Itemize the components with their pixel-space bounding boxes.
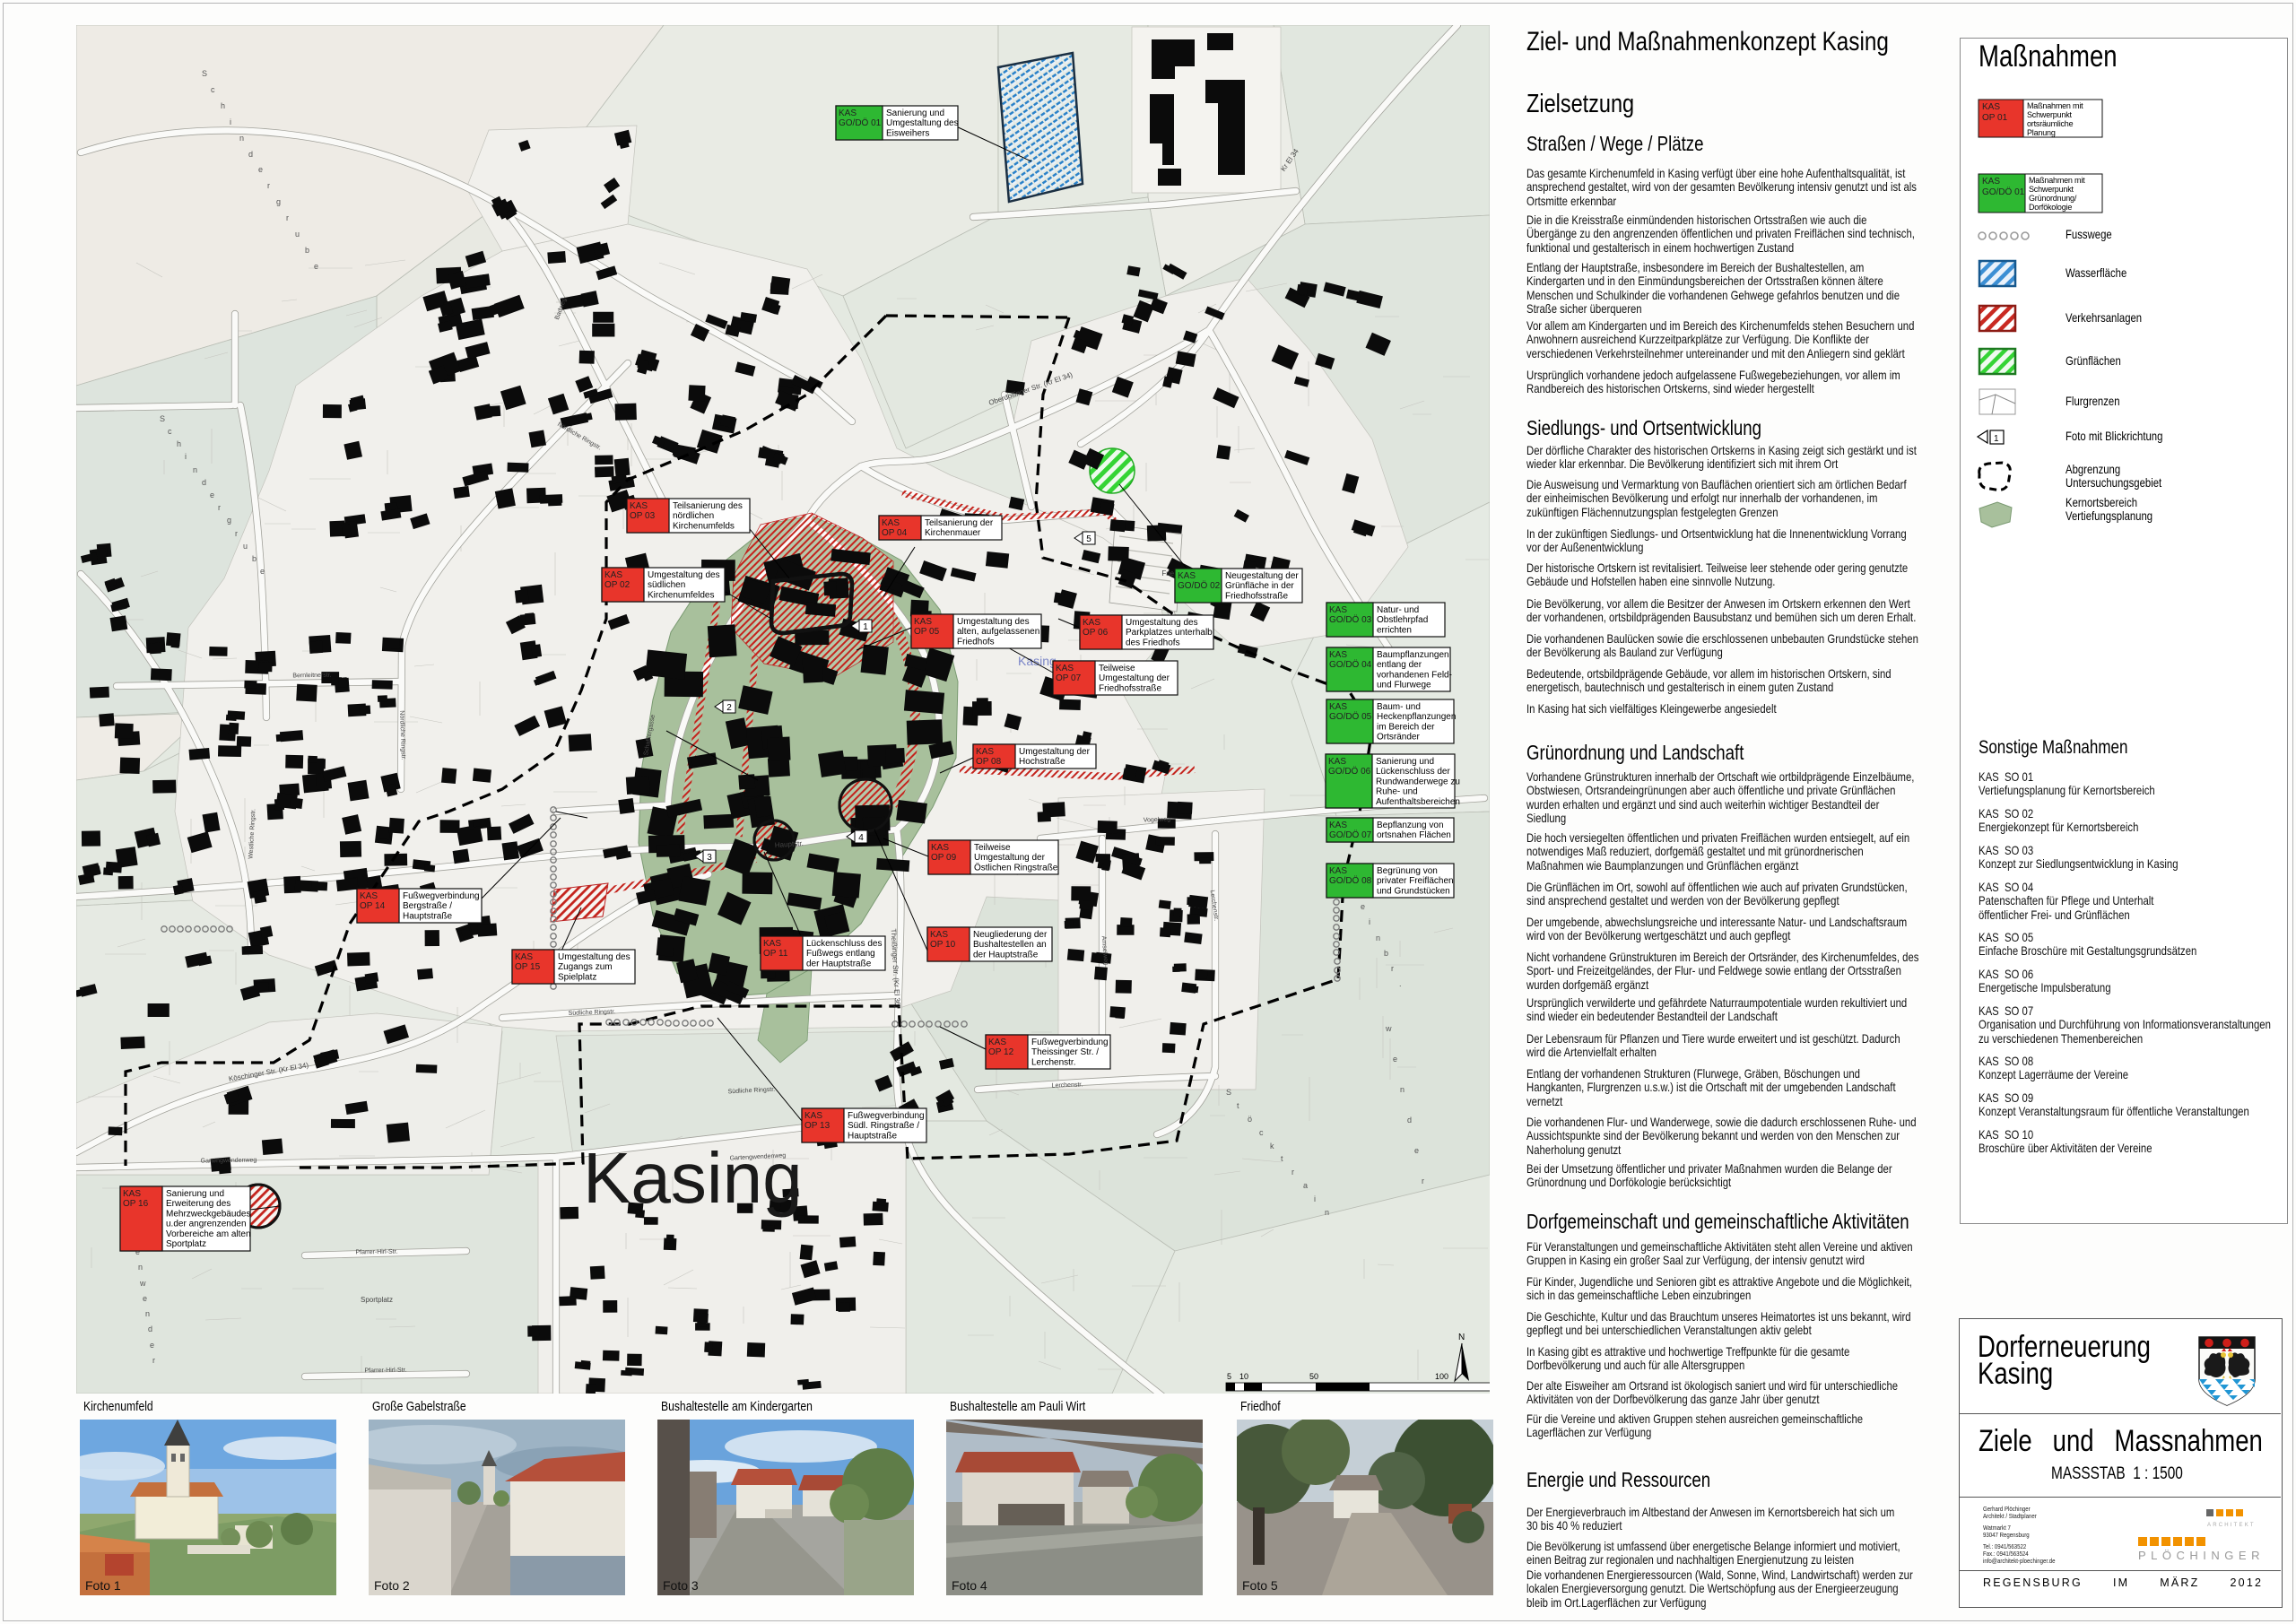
svg-text:Foto 2: Foto 2 <box>374 1578 410 1593</box>
svg-text:Umgestaltung des: Umgestaltung des <box>558 952 631 962</box>
svg-text:Friedhofsstraße: Friedhofsstraße <box>1225 591 1288 601</box>
svg-text:ö: ö <box>1248 1115 1252 1124</box>
svg-text:g: g <box>276 197 281 206</box>
svg-text:PLÖCHINGER: PLÖCHINGER <box>2138 1549 2265 1562</box>
svg-text:alten, aufgelassenen: alten, aufgelassenen <box>957 627 1039 637</box>
svg-text:Sportplatz: Sportplatz <box>361 1296 393 1304</box>
svg-text:Kasing: Kasing <box>583 1138 803 1218</box>
svg-text:Umgestaltung des: Umgestaltung des <box>886 118 959 128</box>
svg-text:Bernleitnerstr.: Bernleitnerstr. <box>292 673 331 680</box>
svg-text:KAS: KAS <box>931 843 949 853</box>
svg-text:S: S <box>160 414 165 423</box>
svg-text:GO/DÖ 01: GO/DÖ 01 <box>839 117 882 128</box>
svg-text:h: h <box>177 439 181 448</box>
svg-text:nördlichen: nördlichen <box>673 511 714 521</box>
svg-text:e: e <box>1414 1146 1419 1155</box>
svg-text:OP 14: OP 14 <box>360 901 386 911</box>
svg-text:Zugangs zum: Zugangs zum <box>558 962 613 972</box>
svg-text:KAS: KAS <box>1329 821 1347 830</box>
svg-text:privater Freiflächen: privater Freiflächen <box>1377 876 1454 886</box>
svg-text:KAS: KAS <box>988 1038 1006 1047</box>
svg-text:Teilsanierung des: Teilsanierung des <box>673 501 743 511</box>
svg-text:Südl. Ringstraße /: Südl. Ringstraße / <box>848 1121 919 1131</box>
svg-text:Bergstraße /: Bergstraße / <box>403 901 452 911</box>
svg-text:Fußwegverbindung: Fußwegverbindung <box>403 891 480 901</box>
svg-text:Maßnahmen mit: Maßnahmen mit <box>2027 101 2083 110</box>
svg-text:u: u <box>295 230 300 239</box>
svg-text:KAS: KAS <box>1329 702 1347 712</box>
svg-text:Foto 4: Foto 4 <box>952 1578 987 1593</box>
svg-text:Bushaltestellen an: Bushaltestellen an <box>973 940 1047 950</box>
svg-text:KAS: KAS <box>1329 866 1347 876</box>
svg-text:KAS: KAS <box>360 891 378 901</box>
svg-text:Sanierung und: Sanierung und <box>1376 757 1434 767</box>
svg-text:OP 16: OP 16 <box>123 1199 149 1209</box>
svg-text:d: d <box>248 150 253 159</box>
svg-text:c: c <box>211 85 215 94</box>
svg-text:N: N <box>1458 1333 1465 1342</box>
svg-text:KAS: KAS <box>804 1111 822 1121</box>
svg-text:KAS: KAS <box>1982 177 2000 187</box>
svg-text:GO/DÖ 08: GO/DÖ 08 <box>1329 875 1372 886</box>
svg-text:Planung: Planung <box>2027 128 2056 137</box>
svg-text:2: 2 <box>726 703 732 713</box>
svg-text:i: i <box>185 452 187 461</box>
svg-text:i: i <box>1314 1194 1316 1203</box>
svg-text:i: i <box>230 117 231 126</box>
svg-text:Umgestaltung der: Umgestaltung der <box>1019 747 1091 757</box>
svg-text:OP 05: OP 05 <box>914 627 940 637</box>
svg-text:Hauptstraße: Hauptstraße <box>403 911 452 921</box>
svg-text:KAS: KAS <box>1083 618 1100 628</box>
svg-text:Östlichen Ringstraße: Östlichen Ringstraße <box>974 862 1058 873</box>
svg-text:n: n <box>1325 1208 1329 1217</box>
svg-text:KAS: KAS <box>1178 571 1196 581</box>
svg-text:Sanierung und: Sanierung und <box>886 109 944 118</box>
svg-text:k: k <box>1270 1142 1274 1151</box>
svg-text:Hochstraße: Hochstraße <box>1019 757 1065 767</box>
svg-text:Pfarrer-Hirl-Str.: Pfarrer-Hirl-Str. <box>364 1368 406 1375</box>
svg-text:1: 1 <box>1994 434 1999 444</box>
svg-text:r: r <box>235 529 238 538</box>
svg-text:c: c <box>1259 1128 1264 1137</box>
svg-text:Hauptstraße: Hauptstraße <box>848 1131 897 1141</box>
svg-text:OP 10: OP 10 <box>930 940 956 950</box>
svg-text:Ortsränder: Ortsränder <box>1377 733 1420 743</box>
svg-text:OP 11: OP 11 <box>763 949 788 959</box>
svg-text:e: e <box>150 1341 154 1350</box>
svg-text:100: 100 <box>1435 1372 1448 1381</box>
svg-text:entlang der: entlang der <box>1377 660 1422 670</box>
svg-text:KAS: KAS <box>882 518 900 528</box>
svg-text:Neugliederung der: Neugliederung der <box>973 930 1048 940</box>
svg-text:Foto 1: Foto 1 <box>85 1578 121 1593</box>
svg-text:Sanierung und: Sanierung und <box>166 1189 224 1199</box>
svg-text:e: e <box>1393 1055 1397 1064</box>
svg-text:Dorfökologie: Dorfökologie <box>2029 203 2072 212</box>
svg-text:w: w <box>139 1279 146 1288</box>
svg-text:r: r <box>152 1356 155 1365</box>
svg-text:Mehrzweckgebäudes: Mehrzweckgebäudes <box>166 1209 251 1219</box>
svg-text:Parkplatzes unterhalb: Parkplatzes unterhalb <box>1126 628 1213 638</box>
svg-text:KAS: KAS <box>930 930 948 940</box>
svg-text:r: r <box>218 503 221 512</box>
svg-text:b: b <box>305 246 309 255</box>
svg-text:OP 04: OP 04 <box>882 528 908 538</box>
svg-text:Foto 3: Foto 3 <box>663 1578 699 1593</box>
svg-text:OP 09: OP 09 <box>931 853 957 863</box>
svg-text:Fußwegs entlang: Fußwegs entlang <box>806 949 875 959</box>
svg-text:OP 15: OP 15 <box>515 962 541 972</box>
svg-text:Teilweise: Teilweise <box>974 843 1011 853</box>
svg-text:KAS: KAS <box>976 747 994 757</box>
svg-text:Maßnahmen mit: Maßnahmen mit <box>2029 176 2085 185</box>
svg-text:Friedhofs: Friedhofs <box>957 637 995 647</box>
svg-text:vorhandenen Feld-: vorhandenen Feld- <box>1377 670 1452 680</box>
svg-text:Spielplatz: Spielplatz <box>558 972 596 982</box>
svg-text:.: . <box>1399 979 1402 988</box>
svg-text:Lückenschluss der: Lückenschluss der <box>1376 767 1450 777</box>
svg-text:u.der angrenzenden: u.der angrenzenden <box>166 1220 247 1229</box>
svg-text:ortsräumliche: ortsräumliche <box>2027 119 2074 128</box>
svg-text:e: e <box>1361 902 1365 911</box>
svg-text:e: e <box>210 491 214 499</box>
svg-text:Teilweise: Teilweise <box>1099 664 1135 673</box>
svg-text:Ruhe- und: Ruhe- und <box>1376 787 1418 797</box>
svg-text:GO/DÖ 07: GO/DÖ 07 <box>1329 829 1372 840</box>
svg-text:g: g <box>227 516 231 525</box>
svg-text:n: n <box>239 134 244 143</box>
svg-text:Schwerpunkt: Schwerpunkt <box>2027 110 2073 119</box>
svg-text:d: d <box>202 478 206 487</box>
svg-text:a: a <box>1303 1181 1308 1190</box>
svg-text:S: S <box>1226 1088 1231 1097</box>
svg-text:Bepflanzung von: Bepflanzung von <box>1377 821 1444 830</box>
svg-text:n: n <box>1376 934 1380 942</box>
svg-text:Gartengwendenweg: Gartengwendenweg <box>201 1157 257 1164</box>
svg-text:Vogelweg: Vogelweg <box>1144 816 1171 823</box>
svg-text:Theissinger Str. /: Theissinger Str. / <box>1031 1047 1099 1057</box>
svg-text:Lerchenstr.: Lerchenstr. <box>1052 1081 1083 1089</box>
svg-text:Teilsanierung der: Teilsanierung der <box>925 518 994 528</box>
svg-text:4: 4 <box>858 833 864 843</box>
svg-text:10: 10 <box>1239 1372 1248 1381</box>
svg-text:ARCHITEKT: ARCHITEKT <box>2207 1523 2256 1528</box>
svg-text:h: h <box>221 101 225 110</box>
svg-text:e: e <box>260 567 265 576</box>
svg-text:Umgestaltung der: Umgestaltung der <box>1099 673 1170 683</box>
svg-text:e: e <box>258 165 263 174</box>
svg-text:r: r <box>1422 1177 1424 1185</box>
svg-text:Erweiterung des: Erweiterung des <box>166 1199 230 1209</box>
svg-text:Heckenpflanzungen: Heckenpflanzungen <box>1377 712 1456 722</box>
svg-text:Aufenthaltsbereichen: Aufenthaltsbereichen <box>1376 797 1460 807</box>
svg-text:Umgestaltung des: Umgestaltung des <box>957 617 1030 627</box>
svg-text:1: 1 <box>863 622 868 632</box>
svg-text:KAS: KAS <box>763 939 781 949</box>
svg-text:e: e <box>143 1294 147 1303</box>
svg-text:der Hauptstraße: der Hauptstraße <box>806 959 872 968</box>
svg-text:KAS: KAS <box>839 109 857 118</box>
svg-text:5: 5 <box>1086 534 1091 544</box>
svg-text:der Hauptstraße: der Hauptstraße <box>973 950 1039 960</box>
svg-text:OP 06: OP 06 <box>1083 628 1109 638</box>
svg-text:n: n <box>1400 1085 1405 1094</box>
svg-text:n: n <box>193 465 197 474</box>
svg-text:w: w <box>1385 1024 1392 1033</box>
svg-text:r: r <box>267 181 270 190</box>
svg-text:errichten: errichten <box>1377 625 1412 635</box>
svg-text:OP 08: OP 08 <box>976 757 1002 767</box>
svg-text:5: 5 <box>1227 1372 1231 1381</box>
svg-text:GO/DÖ 06: GO/DÖ 06 <box>1328 766 1371 777</box>
svg-text:OP 03: OP 03 <box>630 511 656 521</box>
svg-text:b: b <box>1384 949 1388 958</box>
svg-text:OP 13: OP 13 <box>804 1121 831 1131</box>
svg-text:n: n <box>138 1263 143 1272</box>
svg-text:ortsnahen Flächen: ortsnahen Flächen <box>1377 830 1451 840</box>
svg-text:Eisweihers: Eisweihers <box>886 128 929 138</box>
svg-text:r: r <box>286 213 289 222</box>
svg-text:KAS: KAS <box>630 501 648 511</box>
svg-text:KAS: KAS <box>604 570 622 580</box>
svg-text:Pfarrer-Hirl-Str.: Pfarrer-Hirl-Str. <box>355 1249 397 1256</box>
svg-text:Foto 5: Foto 5 <box>1242 1578 1278 1593</box>
svg-text:KAS: KAS <box>1328 757 1346 767</box>
svg-text:GO/DÖ 02: GO/DÖ 02 <box>1178 580 1221 591</box>
svg-text:Obstlehrpfad: Obstlehrpfad <box>1377 615 1428 625</box>
svg-text:Umgestaltung der: Umgestaltung der <box>974 853 1046 863</box>
svg-text:GO/DÖ 04: GO/DÖ 04 <box>1329 659 1372 670</box>
svg-text:Lückenschluss des: Lückenschluss des <box>806 939 883 949</box>
svg-text:KAS: KAS <box>1329 605 1347 615</box>
svg-text:OP 01: OP 01 <box>1982 113 2008 123</box>
svg-text:Vorbereiche am alten: Vorbereiche am alten <box>166 1229 251 1239</box>
svg-text:c: c <box>168 427 172 436</box>
svg-text:d: d <box>148 1324 152 1333</box>
svg-text:i: i <box>1369 917 1370 926</box>
svg-text:Kirchenumfelds: Kirchenumfelds <box>673 521 735 531</box>
svg-text:südlichen: südlichen <box>648 580 685 590</box>
svg-text:3: 3 <box>707 853 712 863</box>
svg-text:Begrünung von: Begrünung von <box>1377 866 1438 876</box>
svg-text:KAS: KAS <box>1056 664 1074 673</box>
svg-text:GO/DÖ 03: GO/DÖ 03 <box>1329 614 1372 625</box>
svg-text:KAS: KAS <box>123 1189 141 1199</box>
svg-text:Rundwanderwege zu: Rundwanderwege zu <box>1376 777 1460 786</box>
svg-text:GO/DÖ 01: GO/DÖ 01 <box>1982 187 2025 197</box>
svg-text:OP 02: OP 02 <box>604 580 631 590</box>
svg-text:KAS: KAS <box>1982 102 2000 112</box>
svg-text:50: 50 <box>1309 1372 1318 1381</box>
svg-text:r: r <box>1391 964 1394 973</box>
svg-text:Baum- und: Baum- und <box>1377 702 1421 712</box>
svg-text:OP 07: OP 07 <box>1056 673 1082 683</box>
svg-text:im Bereich der: im Bereich der <box>1377 722 1435 732</box>
svg-text:Kirchenumfeldes: Kirchenumfeldes <box>648 590 714 600</box>
svg-text:OP 12: OP 12 <box>988 1047 1014 1057</box>
svg-text:Grünfläche in der: Grünfläche in der <box>1225 581 1294 591</box>
svg-text:Natur- und: Natur- und <box>1377 605 1419 615</box>
svg-text:e: e <box>314 262 318 271</box>
svg-text:des Friedhofs: des Friedhofs <box>1126 638 1180 647</box>
svg-text:Fußwegverbindung: Fußwegverbindung <box>848 1111 925 1121</box>
svg-text:KAS: KAS <box>515 952 533 962</box>
svg-text:n: n <box>145 1309 150 1318</box>
svg-text:Baumpflanzungen: Baumpflanzungen <box>1377 650 1449 660</box>
svg-text:Kirchenmauer: Kirchenmauer <box>925 528 981 538</box>
svg-text:KAS: KAS <box>1329 650 1347 660</box>
svg-text:Lerchenstr.: Lerchenstr. <box>1031 1057 1075 1067</box>
svg-text:b: b <box>252 554 257 563</box>
svg-text:KAS: KAS <box>914 617 932 627</box>
svg-text:Friedhofsstraße: Friedhofsstraße <box>1099 683 1161 693</box>
svg-text:und Grundstücken: und Grundstücken <box>1377 886 1450 896</box>
svg-text:Sportplatz: Sportplatz <box>166 1239 206 1249</box>
svg-text:u: u <box>243 542 248 551</box>
svg-text:d: d <box>1407 1116 1412 1125</box>
svg-text:Fußwegverbindung: Fußwegverbindung <box>1031 1038 1109 1047</box>
svg-text:GO/DÖ 05: GO/DÖ 05 <box>1329 711 1372 722</box>
svg-text:Neugestaltung der: Neugestaltung der <box>1225 571 1299 581</box>
svg-text:r: r <box>1291 1168 1294 1177</box>
svg-text:Grünordnung/: Grünordnung/ <box>2029 194 2077 203</box>
svg-text:Schwerpunkt: Schwerpunkt <box>2029 185 2074 194</box>
svg-text:Umgestaltung des: Umgestaltung des <box>1126 618 1198 628</box>
svg-text:S: S <box>202 69 207 78</box>
svg-text:Umgestaltung des: Umgestaltung des <box>648 570 720 580</box>
svg-text:und Flurwege: und Flurwege <box>1377 681 1431 690</box>
